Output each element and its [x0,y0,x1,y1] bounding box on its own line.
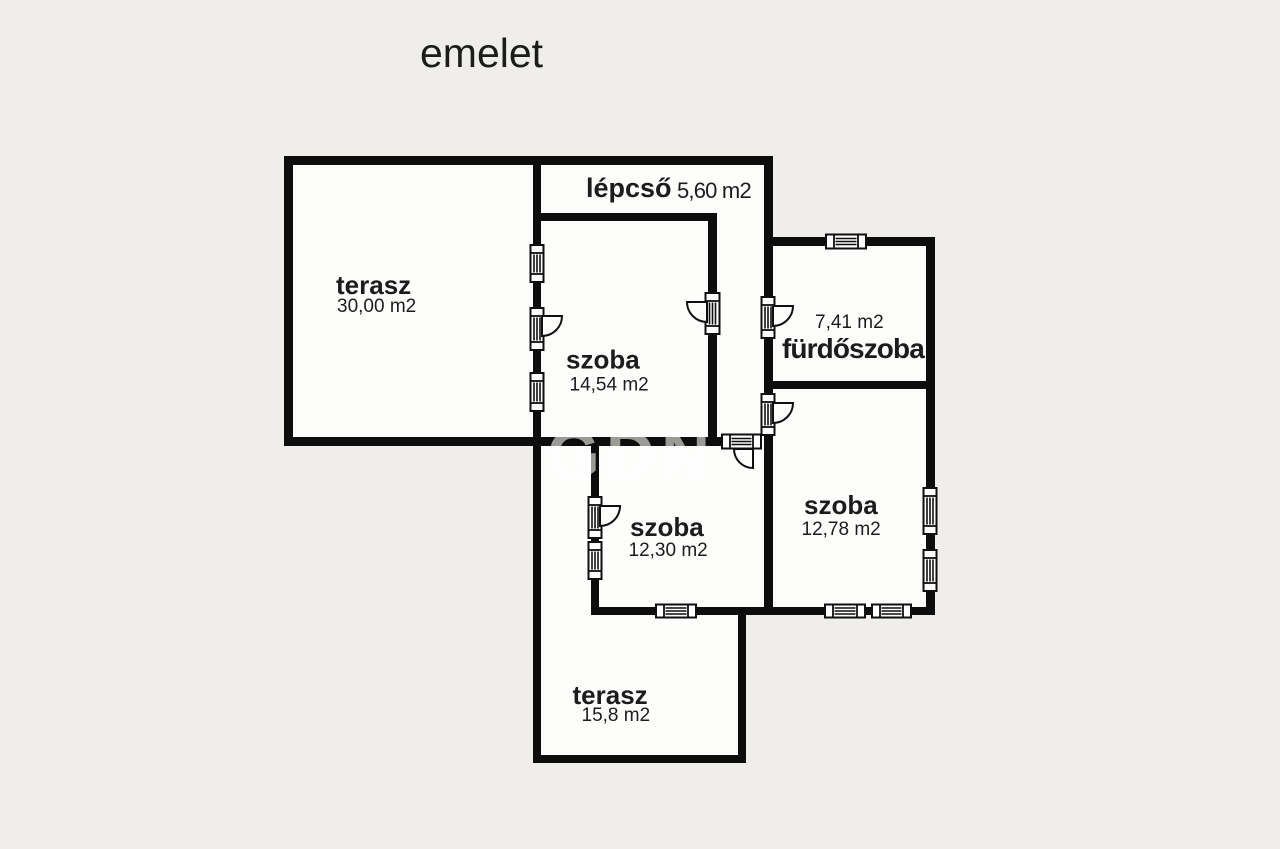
svg-text:30,00 m2: 30,00 m2 [337,296,416,317]
svg-text:emelet: emelet [420,30,544,76]
svg-text:7,41 m2: 7,41 m2 [815,312,884,333]
svg-text:GDN: GDN [547,417,716,493]
svg-text:12,30 m2: 12,30 m2 [629,540,708,561]
svg-text:14,54 m2: 14,54 m2 [570,375,649,396]
svg-text:szoba: szoba [566,345,640,375]
svg-text:5,60 m2: 5,60 m2 [677,178,751,203]
svg-text:fürdőszoba: fürdőszoba [782,333,925,364]
svg-text:szoba: szoba [630,512,704,542]
svg-text:szoba: szoba [804,490,878,520]
svg-text:15,8 m2: 15,8 m2 [582,705,651,726]
svg-text:lépcső: lépcső [586,173,672,203]
svg-text:12,78 m2: 12,78 m2 [802,519,881,540]
